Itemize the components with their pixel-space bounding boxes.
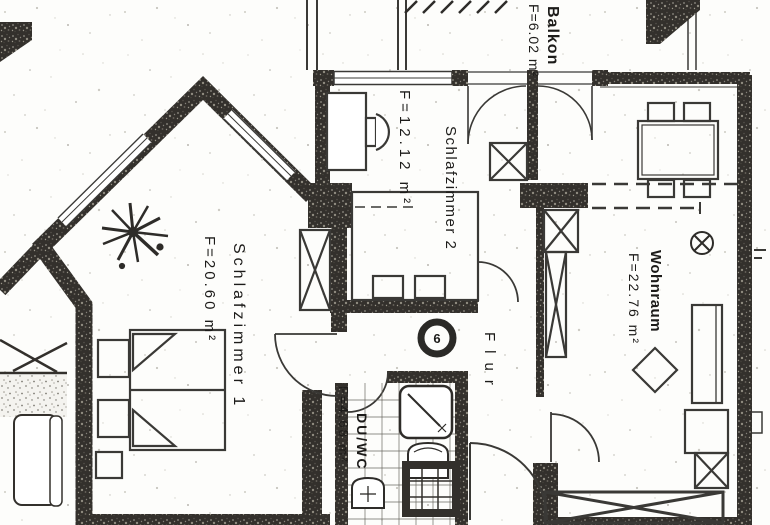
balkon-label: Balkon — [544, 6, 561, 65]
duwc-area-label: F=4.68 m² — [336, 386, 351, 464]
flur-label: Flur — [481, 332, 498, 394]
desk — [327, 93, 366, 170]
floor-plan-drawing: 6 F=6.02 m² Balkon F=12.12 m² Schlafzimm… — [0, 0, 770, 525]
unit-number-badge: 6 — [421, 322, 453, 354]
schlafzimmer2-area-label: F=12.12 m² — [396, 90, 413, 207]
schlafzimmer1-area-label: F=20.60 m² — [201, 236, 218, 343]
chair — [648, 180, 674, 197]
window-schlafzimmer2 — [334, 72, 452, 85]
sink-icon — [352, 478, 384, 508]
wohnraum-label: Wohnraum — [647, 250, 664, 332]
balkon-area-label: F=6.02 m² — [526, 4, 542, 77]
desk-chair-icon — [366, 114, 389, 150]
shower-icon — [400, 386, 452, 438]
unit-number: 6 — [433, 331, 440, 346]
schlafzimmer2-label: Schlafzimmer 2 — [442, 126, 459, 250]
duwc-label: DU/WC — [354, 413, 370, 470]
wohnraum-area-label: F=22.76 m² — [626, 253, 642, 345]
floor-plan: 6 F=6.02 m² Balkon F=12.12 m² Schlafzimm… — [0, 0, 770, 525]
toilet-icon — [408, 443, 448, 478]
schlafzimmer1-label: Schlafzimmer 1 — [230, 243, 247, 409]
chair — [684, 180, 710, 197]
